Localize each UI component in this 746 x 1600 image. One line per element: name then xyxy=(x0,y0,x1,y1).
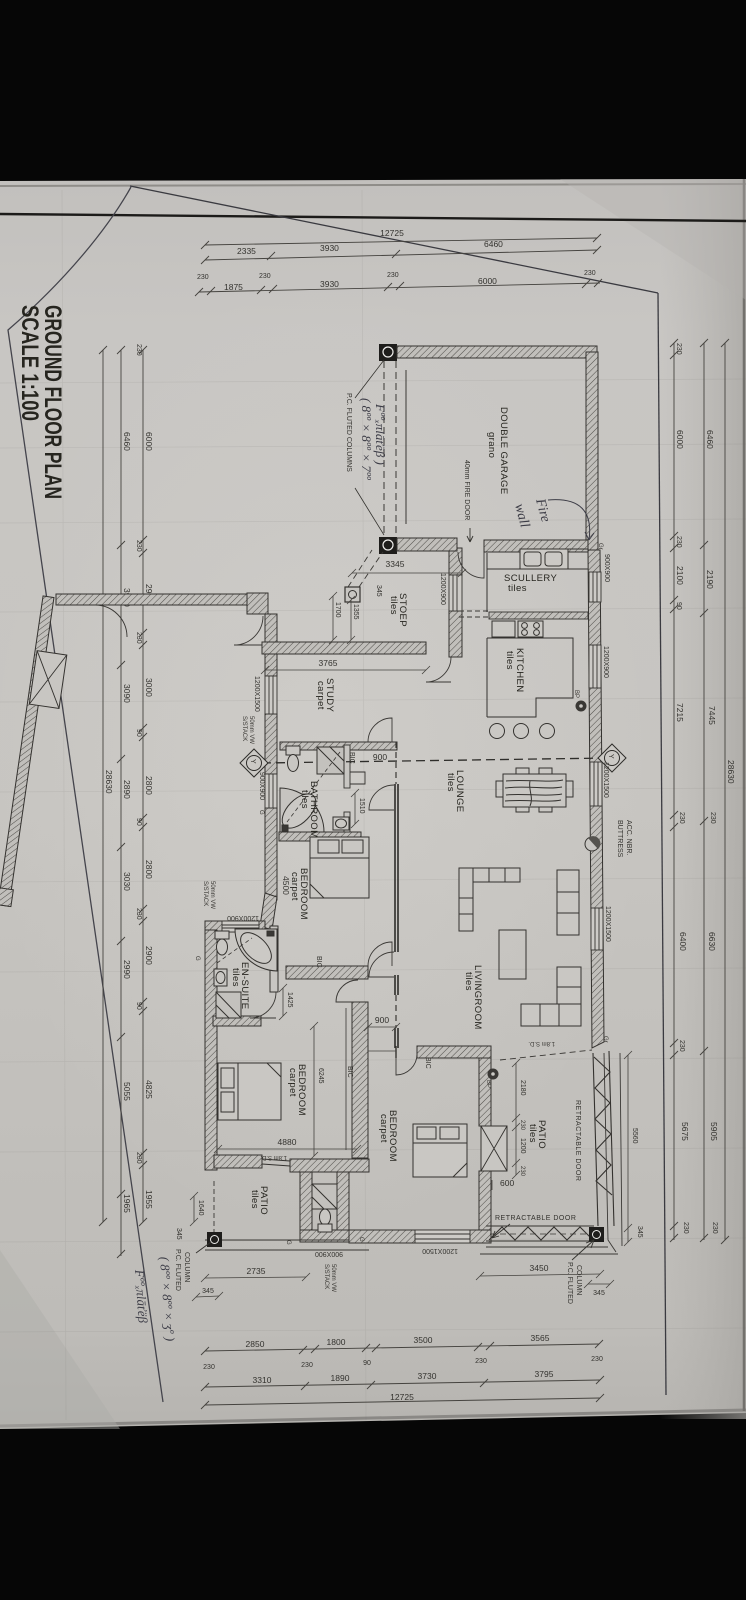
svg-text:1700: 1700 xyxy=(334,602,341,618)
svg-text:345: 345 xyxy=(175,1228,182,1240)
svg-text:6400: 6400 xyxy=(678,932,688,951)
svg-text:BP: BP xyxy=(485,1080,491,1088)
svg-text:RETRACTABLE DOOR: RETRACTABLE DOOR xyxy=(574,1100,581,1181)
svg-text:( 8ºº × 8ºº × 7ºº: ( 8ºº × 8ºº × 7ºº xyxy=(359,398,374,481)
svg-text:12725: 12725 xyxy=(390,1392,414,1402)
svg-text:DOUBLE GARAGE: DOUBLE GARAGE xyxy=(498,407,509,495)
svg-text:230: 230 xyxy=(135,1152,142,1164)
svg-text:1200X900: 1200X900 xyxy=(227,914,259,921)
svg-text:BIC: BIC xyxy=(346,1066,353,1078)
svg-text:6630: 6630 xyxy=(707,932,717,951)
svg-text:5560: 5560 xyxy=(631,1128,638,1144)
svg-text:90: 90 xyxy=(135,818,142,826)
svg-text:5905: 5905 xyxy=(709,1122,719,1141)
svg-text:Gr: Gr xyxy=(602,1036,608,1043)
svg-text:230: 230 xyxy=(675,536,682,548)
svg-text:tiles: tiles xyxy=(249,1190,260,1209)
svg-text:BIC: BIC xyxy=(315,956,322,968)
svg-text:2180: 2180 xyxy=(519,1080,526,1096)
svg-text:900: 900 xyxy=(373,752,387,762)
svg-text:7445: 7445 xyxy=(707,706,717,725)
svg-text:345: 345 xyxy=(375,585,382,597)
svg-text:90: 90 xyxy=(135,729,142,737)
svg-text:230: 230 xyxy=(682,1222,689,1234)
svg-text:230: 230 xyxy=(519,1120,525,1131)
svg-text:1355: 1355 xyxy=(352,604,359,620)
svg-text:3795: 3795 xyxy=(535,1369,554,1379)
svg-text:2190: 2190 xyxy=(705,570,715,589)
svg-text:carpet: carpet xyxy=(378,1114,389,1143)
svg-text:3565: 3565 xyxy=(531,1333,550,1343)
svg-text:230: 230 xyxy=(584,270,596,277)
svg-text:ACC. NBR.: ACC. NBR. xyxy=(625,820,632,855)
svg-text:3030: 3030 xyxy=(122,872,132,891)
svg-text:230: 230 xyxy=(678,812,685,824)
svg-text:230: 230 xyxy=(203,1364,215,1371)
svg-text:Gr: Gr xyxy=(597,543,603,550)
svg-text:3930: 3930 xyxy=(320,279,339,289)
svg-text:230: 230 xyxy=(135,540,142,552)
svg-text:230: 230 xyxy=(709,812,716,824)
svg-text:G: G xyxy=(358,1237,364,1242)
svg-text:SCALE 1:100: SCALE 1:100 xyxy=(16,305,43,421)
svg-text:1200X1500: 1200X1500 xyxy=(602,762,609,798)
svg-text:tiles: tiles xyxy=(527,1124,538,1143)
svg-text:G: G xyxy=(285,1240,291,1245)
svg-text:345: 345 xyxy=(593,1290,605,1297)
svg-text:6000: 6000 xyxy=(144,432,154,451)
svg-text:900X900: 900X900 xyxy=(315,1250,343,1257)
svg-text:S/STACK: S/STACK xyxy=(323,1264,329,1289)
svg-text:6460: 6460 xyxy=(705,430,715,449)
svg-text:2335: 2335 xyxy=(237,246,256,256)
svg-text:Y: Y xyxy=(249,759,256,764)
svg-text:tiles: tiles xyxy=(388,596,399,615)
svg-text:90: 90 xyxy=(363,1360,371,1367)
svg-text:COLUMN: COLUMN xyxy=(183,1252,190,1282)
svg-text:1200X1500: 1200X1500 xyxy=(604,906,611,942)
svg-text:BIC: BIC xyxy=(424,1057,431,1069)
svg-text:6460: 6460 xyxy=(122,432,132,451)
svg-text:230: 230 xyxy=(135,344,142,356)
svg-text:3765: 3765 xyxy=(319,658,338,668)
svg-text:4825: 4825 xyxy=(144,1080,154,1099)
svg-text:7215: 7215 xyxy=(675,703,685,722)
svg-text:90: 90 xyxy=(135,1002,142,1010)
svg-text:1425: 1425 xyxy=(286,992,293,1008)
svg-text:40mm FIRE DOOR: 40mm FIRE DOOR xyxy=(463,460,470,520)
svg-text:1200X1500: 1200X1500 xyxy=(253,676,260,712)
svg-text:230: 230 xyxy=(197,274,209,281)
svg-text:1.8m S.D.: 1.8m S.D. xyxy=(528,1040,555,1046)
svg-text:1200X900: 1200X900 xyxy=(439,573,446,605)
svg-text:90: 90 xyxy=(675,602,682,610)
svg-text:2890: 2890 xyxy=(122,780,132,799)
svg-text:230: 230 xyxy=(675,343,682,355)
svg-text:4500: 4500 xyxy=(281,876,291,895)
svg-text:230: 230 xyxy=(591,1356,603,1363)
svg-text:600: 600 xyxy=(500,1178,514,1188)
svg-text:28630: 28630 xyxy=(726,760,736,784)
svg-text:2990: 2990 xyxy=(122,960,132,979)
svg-text:Fººₓπlāťëβ ): Fººₓπlāťëβ ) xyxy=(373,403,388,465)
svg-text:3310: 3310 xyxy=(253,1375,272,1385)
svg-text:2800: 2800 xyxy=(144,776,154,795)
svg-text:230: 230 xyxy=(259,273,271,280)
svg-text:6245: 6245 xyxy=(317,1068,324,1084)
svg-text:S/STACK: S/STACK xyxy=(202,881,208,906)
svg-text:50mm VW: 50mm VW xyxy=(330,1264,336,1292)
svg-text:3090: 3090 xyxy=(122,684,132,703)
svg-text:2735: 2735 xyxy=(247,1266,266,1276)
svg-text:BIC: BIC xyxy=(348,752,355,764)
svg-text:345: 345 xyxy=(202,1288,214,1295)
svg-text:6460: 6460 xyxy=(484,239,503,249)
svg-text:1200: 1200 xyxy=(519,1138,526,1154)
svg-text:1200X1500: 1200X1500 xyxy=(422,1247,458,1254)
svg-text:900X900: 900X900 xyxy=(603,554,610,582)
svg-text:4880: 4880 xyxy=(278,1137,297,1147)
svg-text:S/STACK: S/STACK xyxy=(241,716,247,741)
svg-text:2900: 2900 xyxy=(144,946,154,965)
svg-text:230: 230 xyxy=(135,632,142,644)
svg-text:230: 230 xyxy=(135,908,142,920)
svg-text:1800: 1800 xyxy=(327,1337,346,1347)
svg-text:3730: 3730 xyxy=(418,1371,437,1381)
svg-text:230: 230 xyxy=(475,1358,487,1365)
svg-text:tiles: tiles xyxy=(504,651,515,670)
svg-text:1890: 1890 xyxy=(331,1373,350,1383)
svg-text:900: 900 xyxy=(375,1015,389,1025)
svg-text:G: G xyxy=(194,956,200,961)
svg-text:230: 230 xyxy=(387,272,399,279)
svg-text:3930: 3930 xyxy=(320,243,339,253)
svg-text:BP: BP xyxy=(573,690,579,698)
svg-text:5675: 5675 xyxy=(680,1122,690,1141)
svg-text:345: 345 xyxy=(636,1226,643,1238)
svg-text:carpet: carpet xyxy=(315,681,326,710)
svg-text:230: 230 xyxy=(301,1362,313,1369)
svg-text:900X900: 900X900 xyxy=(258,772,265,800)
svg-text:2100: 2100 xyxy=(675,566,685,585)
svg-text:5055: 5055 xyxy=(122,1082,132,1101)
svg-text:1965: 1965 xyxy=(122,1194,132,1213)
svg-text:2850: 2850 xyxy=(246,1339,265,1349)
svg-text:3000: 3000 xyxy=(144,678,154,697)
svg-text:230: 230 xyxy=(711,1222,718,1234)
svg-text:grano: grano xyxy=(486,432,497,458)
svg-text:230: 230 xyxy=(519,1166,525,1177)
svg-text:50mm VW: 50mm VW xyxy=(209,881,215,909)
svg-text:3345: 3345 xyxy=(386,559,405,569)
svg-text:tiles: tiles xyxy=(230,968,241,987)
svg-text:230: 230 xyxy=(678,1040,685,1052)
svg-text:Y: Y xyxy=(607,754,614,759)
svg-text:1510: 1510 xyxy=(358,798,365,814)
svg-text:tiles: tiles xyxy=(445,773,456,792)
svg-text:P.C. FLUTED: P.C. FLUTED xyxy=(566,1262,573,1304)
svg-text:P.C. FLUTED COLUMNS: P.C. FLUTED COLUMNS xyxy=(345,393,352,472)
svg-text:28630: 28630 xyxy=(104,770,114,794)
svg-text:12725: 12725 xyxy=(380,228,404,238)
svg-text:6000: 6000 xyxy=(675,430,685,449)
svg-text:3500: 3500 xyxy=(414,1335,433,1345)
svg-text:1.8m S.D.: 1.8m S.D. xyxy=(260,1154,287,1160)
svg-text:1640: 1640 xyxy=(197,1200,204,1216)
svg-text:G: G xyxy=(258,810,264,815)
svg-text:1955: 1955 xyxy=(144,1190,154,1209)
svg-text:tiles: tiles xyxy=(508,583,527,594)
svg-text:1200X900: 1200X900 xyxy=(602,646,609,678)
svg-text:3450: 3450 xyxy=(530,1263,549,1273)
svg-text:tiles: tiles xyxy=(463,972,474,991)
svg-text:1875: 1875 xyxy=(224,282,243,292)
svg-text:tiles: tiles xyxy=(299,790,310,809)
svg-text:2800: 2800 xyxy=(144,860,154,879)
svg-text:P.C. FLUTED: P.C. FLUTED xyxy=(174,1249,181,1291)
svg-text:6000: 6000 xyxy=(478,276,497,286)
svg-text:50mm VW: 50mm VW xyxy=(248,716,254,744)
svg-text:BUTTRESS: BUTTRESS xyxy=(616,820,623,858)
svg-text:RETRACTABLE DOOR: RETRACTABLE DOOR xyxy=(495,1215,576,1222)
svg-text:COLUMN: COLUMN xyxy=(575,1265,582,1295)
svg-text:carpet: carpet xyxy=(287,1068,298,1097)
